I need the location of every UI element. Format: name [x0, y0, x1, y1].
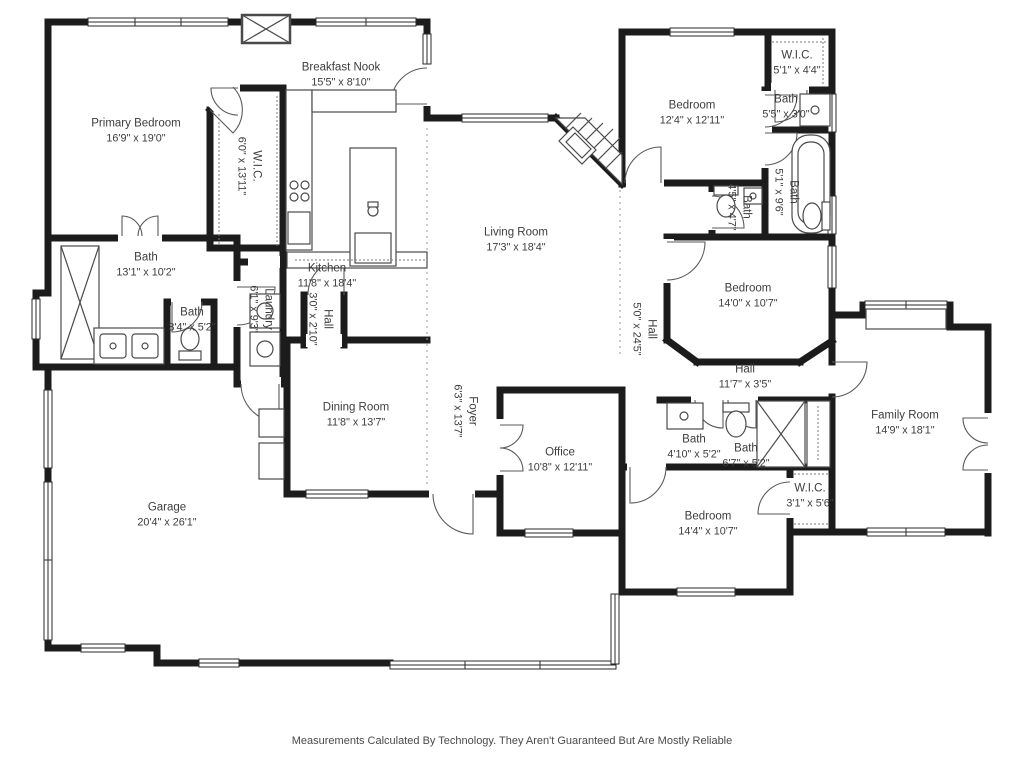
room-name: Bedroom [660, 98, 724, 113]
room-name: W.I.C. [786, 481, 833, 496]
room-dims: 14'9" x 18'1" [871, 423, 939, 437]
room-label: Living Room 17'3" x 18'4" [484, 225, 548, 254]
room-name: Bath [116, 250, 175, 265]
room-dims: 20'4" x 26'1" [137, 515, 196, 529]
room-dims: 11'8" x 18'4" [298, 276, 356, 290]
room-name: W.I.C. [773, 48, 820, 63]
room-label: W.I.C. 3'1" x 5'6" [786, 481, 833, 510]
chimney [242, 15, 290, 43]
room-dims: 3'0" x 2'10" [305, 292, 319, 345]
room-dims: 4'10" x 5'2" [667, 447, 720, 461]
room-name: Bath [786, 168, 801, 215]
room-name: Bedroom [678, 509, 737, 524]
room-name: Kitchen [298, 261, 356, 276]
room-dims: 5'1" x 4'4" [773, 63, 820, 77]
room-label: Bedroom 14'0" x 10'7" [718, 281, 777, 310]
toilet [803, 202, 830, 230]
room-dims: 11'7" x 3'5" [719, 377, 771, 391]
door-arc [832, 362, 867, 397]
room-label: Bath 6'7" x 5'2" [722, 441, 769, 470]
room-dims: 15'5" x 8'10" [302, 75, 381, 89]
room-label: Family Room 14'9" x 18'1" [871, 408, 939, 437]
room-dims: 5'1" x 9'6" [771, 168, 785, 215]
room-label: Bath 13'1" x 10'2" [116, 250, 175, 279]
room-name: Office [528, 445, 592, 460]
room-name: Family Room [871, 408, 939, 423]
room-label: Primary Bedroom 16'9" x 19'0" [91, 116, 180, 145]
room-name: Breakfast Nook [302, 60, 381, 75]
room-dims: 6'0" x 13'11" [234, 137, 248, 195]
room-label: Hall 5'0" x 24'5" [629, 302, 658, 355]
room-dims: 16'9" x 19'0" [91, 131, 180, 145]
room-label: Office 10'8" x 12'11" [528, 445, 592, 474]
room-label: Bath 3'4" x 5'2" [168, 305, 215, 334]
room-dims: 13'1" x 10'2" [116, 265, 175, 279]
room-dims: 5'5" x 3'0" [762, 107, 809, 121]
room-label: Hall 11'7" x 3'5" [719, 362, 771, 391]
window-bench [866, 309, 946, 329]
room-label: Laundry 6'1" x 9'3" [246, 285, 275, 332]
room-name: Bath [667, 432, 720, 447]
room-label: Dining Room 11'8" x 13'7" [323, 400, 389, 429]
room-name: Primary Bedroom [91, 116, 180, 131]
room-dims: 17'3" x 18'4" [484, 240, 548, 254]
room-name: Garage [137, 500, 196, 515]
room-dims: 12'4" x 12'11" [660, 113, 724, 127]
room-dims: 14'4" x 10'7" [678, 524, 737, 538]
cabinets [259, 409, 284, 479]
room-label: Hall 3'0" x 2'10" [305, 292, 334, 345]
room-label: Bath 5'5" x 3'0" [762, 92, 809, 121]
room-name: Hall [719, 362, 771, 377]
room-name: Laundry [261, 285, 276, 332]
room-label: Bath 4'10" x 5'2" [667, 432, 720, 461]
room-label: Breakfast Nook 15'5" x 8'10" [302, 60, 381, 89]
room-label: Bedroom 14'4" x 10'7" [678, 509, 737, 538]
room-label: Kitchen 11'8" x 18'4" [298, 261, 356, 290]
room-name: Dining Room [323, 400, 389, 415]
room-name: Foyer [465, 384, 480, 437]
fireplace [556, 113, 622, 184]
room-dims: 5'0" x 24'5" [629, 302, 643, 355]
room-name: Hall [320, 292, 335, 345]
room-name: Living Room [484, 225, 548, 240]
room-name: Bath [168, 305, 215, 320]
room-name: Bath [762, 92, 809, 107]
room-name: W.I.C. [249, 137, 264, 195]
room-dims: 6'7" x 5'2" [722, 456, 769, 470]
room-dims: 6'1" x 9'3" [246, 285, 260, 332]
room-name: Bedroom [718, 281, 777, 296]
room-dims: 4'5" x 4'7" [724, 183, 738, 230]
toilet [723, 403, 749, 437]
room-label: Bath 4'5" x 4'7" [724, 183, 753, 230]
floorplan: Primary Bedroom 16'9" x 19'0" W.I.C. 6'0… [0, 0, 1024, 768]
room-dims: 6'3" x 13'7" [450, 384, 464, 437]
kitchen-island [350, 148, 396, 266]
room-label: Garage 20'4" x 26'1" [137, 500, 196, 529]
room-name: Bath [722, 441, 769, 456]
room-label: W.I.C. 6'0" x 13'11" [234, 137, 263, 195]
room-name: Bath [739, 183, 754, 230]
room-name: Hall [644, 302, 659, 355]
walk-in-shower [61, 246, 99, 359]
disclaimer-text: Measurements Calculated By Technology. T… [292, 735, 733, 747]
floorplan-drawing [0, 0, 1024, 768]
room-label: Bath 5'1" x 9'6" [771, 168, 800, 215]
room-dims: 10'8" x 12'11" [528, 460, 592, 474]
vanity [667, 403, 703, 429]
room-dims: 3'1" x 5'6" [786, 496, 833, 510]
room-label: Bedroom 12'4" x 12'11" [660, 98, 724, 127]
room-label: W.I.C. 5'1" x 4'4" [773, 48, 820, 77]
room-label: Foyer 6'3" x 13'7" [450, 384, 479, 437]
room-dims: 3'4" x 5'2" [168, 320, 215, 334]
room-dims: 11'8" x 13'7" [323, 415, 389, 429]
double-vanity [94, 328, 164, 364]
room-dims: 14'0" x 10'7" [718, 296, 777, 310]
